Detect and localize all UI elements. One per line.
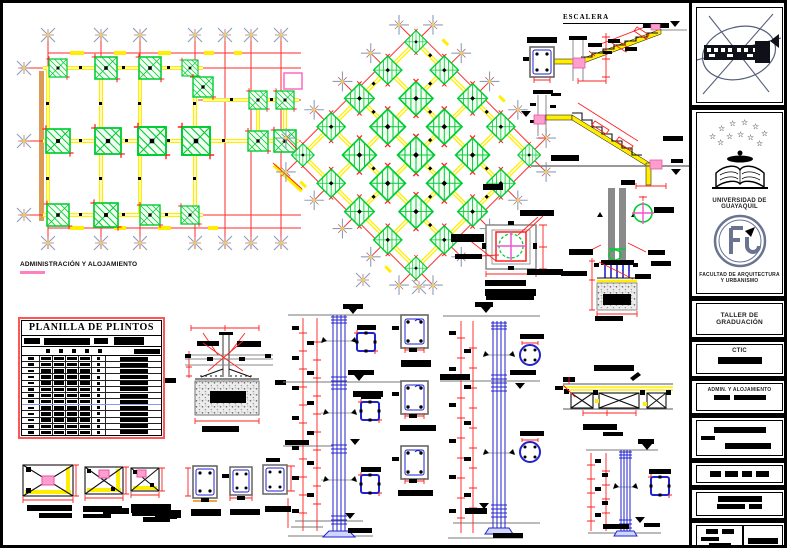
plinth-table-body — [22, 356, 161, 435]
university-block: ☆☆☆☆☆☆ ☆☆☆☆☆ UNIVERSIDAD DE GUAYAQUIL FA… — [696, 112, 783, 294]
footing-elevation-detail — [561, 188, 674, 321]
svg-text:☆: ☆ — [756, 139, 763, 148]
svg-text:☆: ☆ — [747, 133, 754, 142]
titleblock-divider — [690, 518, 787, 523]
workshop-block: TALLER DE GRADUACIÓN — [696, 303, 783, 335]
faculty-logo — [711, 213, 769, 269]
beam-sections-bottom — [103, 458, 295, 519]
column-elevation-2 — [440, 293, 544, 538]
author-block — [696, 492, 783, 516]
project-block: ADMIN. Y ALOJAMIENTO — [696, 383, 783, 411]
svg-text:☆: ☆ — [718, 124, 725, 133]
svg-text:☆: ☆ — [737, 130, 744, 139]
svg-text:☆: ☆ — [752, 122, 759, 131]
workshop-label: TALLER DE GRADUACIÓN — [710, 312, 770, 326]
plinth-table-header — [22, 336, 161, 347]
svg-text:☆: ☆ — [741, 118, 748, 127]
notes-block — [696, 420, 783, 456]
beam-plan-detail — [555, 365, 673, 416]
plinth-table-subheader — [22, 347, 161, 356]
svg-text:☆: ☆ — [709, 132, 716, 141]
stairs-title: ESCALERA — [563, 13, 669, 24]
titleblock-divider — [690, 413, 787, 418]
svg-text:☆: ☆ — [761, 129, 768, 138]
stair-section-up — [546, 21, 687, 84]
plinth-plan-details — [23, 465, 171, 522]
beam-section-top — [523, 37, 557, 83]
beam-sections-stack — [392, 315, 436, 496]
title-block: ☆☆☆☆☆☆ ☆☆☆☆☆ UNIVERSIDAD DE GUAYAQUIL FA… — [689, 3, 787, 545]
plinth-schedule-table: PLANILLA DE PLINTOS — [18, 317, 165, 439]
svg-text:☆: ☆ — [726, 132, 733, 141]
titleblock-divider — [690, 105, 787, 110]
code-label: CTIC — [697, 348, 782, 354]
table-row — [22, 429, 161, 435]
scale-block — [696, 465, 783, 483]
titleblock-divider — [690, 376, 787, 381]
site-plan-graphic — [697, 8, 781, 99]
titleblock-divider — [690, 485, 787, 490]
titleblock-divider — [690, 337, 787, 342]
plan-title: ADMINISTRACIÓN Y ALOJAMIENTO — [20, 261, 137, 268]
plan-title-underline — [20, 271, 45, 274]
university-logo: ☆☆☆☆☆☆ ☆☆☆☆☆ — [698, 117, 782, 195]
site-plan-thumbnail — [696, 7, 783, 103]
university-name: UNIVERSIDAD DE GUAYAQUIL — [697, 198, 782, 210]
plinth-section-detail — [163, 325, 286, 432]
drawing-sheet: .gl{stroke:#ff2a2a;stroke-width:1;fill:n… — [0, 0, 787, 548]
svg-text:☆: ☆ — [729, 119, 736, 128]
plan-orthogonal-foundation — [17, 28, 302, 250]
plinth-table-title: PLANILLA DE PLINTOS — [22, 321, 161, 336]
titleblock-divider — [690, 296, 787, 301]
column-elevation-3 — [583, 424, 672, 536]
faculty-name: FACULTAD DE ARQUITECTURA Y URBANISMO — [697, 272, 782, 284]
project-label: ADMIN. Y ALOJAMIENTO — [697, 387, 782, 393]
titleblock-divider — [690, 458, 787, 463]
sheet-number-block — [696, 525, 783, 548]
code-block: CTIC — [696, 344, 783, 374]
svg-text:☆: ☆ — [717, 138, 724, 147]
drawing-canvas: .gl{stroke:#ff2a2a;stroke-width:1;fill:n… — [3, 3, 784, 545]
